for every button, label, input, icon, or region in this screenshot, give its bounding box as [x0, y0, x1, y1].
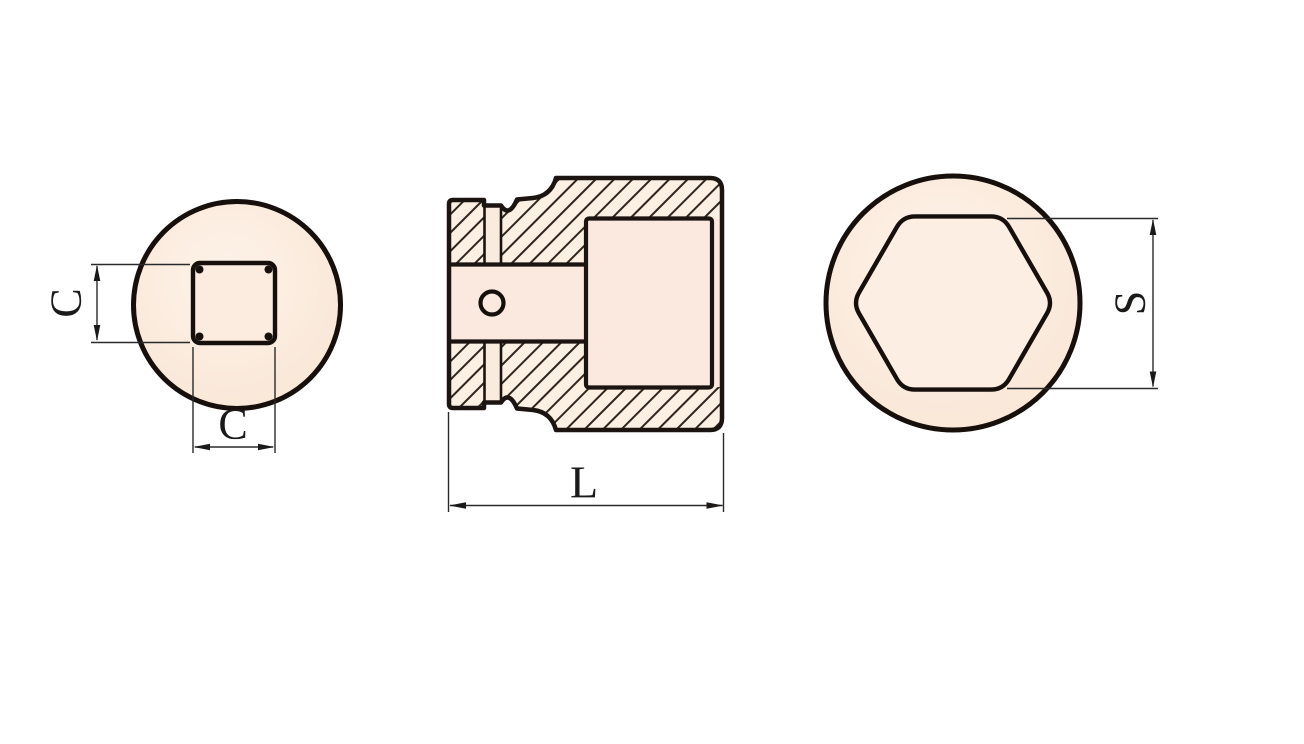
square-drive-end-view: C C [42, 202, 341, 454]
dimension-label-square-height: C [42, 288, 91, 317]
retaining-pin-hole [481, 292, 504, 315]
drive-square-recess [193, 263, 275, 343]
technical-drawing: C C L [0, 0, 1304, 744]
dimension-label-hex-across-flats: S [1106, 291, 1155, 315]
dimension-label-square-width: C [218, 400, 247, 449]
square-drive-channel [451, 266, 586, 340]
drawing-stage: C C L [0, 0, 1304, 744]
hex-socket-end-view: S [826, 176, 1158, 430]
cross-section-side-view: L [449, 178, 724, 512]
dimension-label-overall-length: L [570, 457, 598, 508]
hex-recess-cavity [586, 218, 712, 388]
